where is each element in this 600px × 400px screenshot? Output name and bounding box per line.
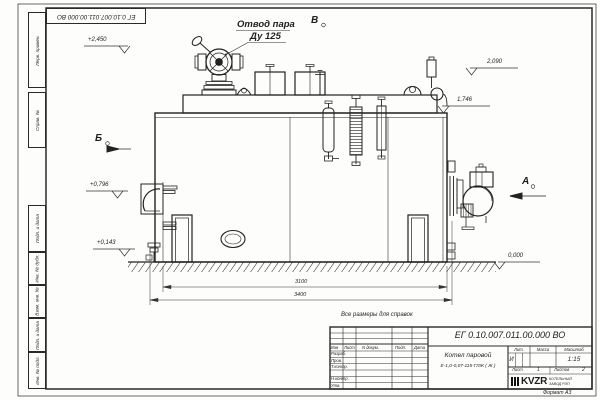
- format-label: Формат А3: [543, 391, 571, 396]
- tb-row-tkontr: Т.контр.: [331, 365, 348, 369]
- margin-label: Подп. и дата: [35, 214, 40, 243]
- callout-steam-outlet: Отвод пара: [237, 20, 295, 30]
- dim-inner: 3100: [295, 280, 307, 286]
- margin-label: Подп. и дата: [35, 321, 40, 350]
- top-left-stamp: ЕГ 0.10.007.011.00.000 ВО: [46, 8, 146, 24]
- tb-col-podp: Подп.: [395, 346, 406, 350]
- boiler-supports: [172, 215, 428, 262]
- view-arrows: [106, 23, 546, 199]
- tb-sheet-value: 1: [537, 368, 540, 373]
- margin-cell-vzam-inv: Взам. инв. №: [28, 285, 46, 318]
- level-plus-0143: +0,143: [97, 240, 116, 246]
- kvzr-company-name: КОТЕЛЬНЫЙ ЗАВОД РЭП: [549, 377, 572, 385]
- margin-cell-inv-dubl: Инв. № дубл.: [28, 252, 46, 285]
- tb-lit-label: Лит.: [508, 348, 530, 352]
- pin-fitting: [315, 71, 325, 96]
- view-marker-b: Б: [95, 134, 102, 144]
- tb-product-model: Е-1,0-0,07-115-ГЛЖ ( Ж ): [428, 365, 508, 370]
- margin-label: Перв. примен.: [35, 35, 40, 66]
- margin-cell-podp-data-2: Подп. и дата: [28, 318, 46, 352]
- stamp-text: ЕГ 0.10.007.011.00.000 ВО: [57, 13, 136, 20]
- kvzr-logo-bars-icon: [511, 377, 519, 386]
- margin-cell-inv-podl: Инв. № подл.: [28, 352, 46, 389]
- level-plus-0796: +0,796: [90, 182, 109, 188]
- burner-assembly: [447, 161, 493, 259]
- level-2090: 2,090: [487, 59, 502, 65]
- margin-label: Справ. №: [35, 110, 40, 131]
- steam-valve: [191, 35, 243, 95]
- margin-cell-podp-data-1: Подп. и дата: [28, 205, 46, 252]
- margin-label: Инв. № дубл.: [35, 254, 40, 282]
- tb-col-list: Лист: [344, 346, 355, 350]
- safety-valves: [255, 65, 325, 96]
- tb-massa-label: Масса: [530, 348, 556, 352]
- boiler-drawing: [0, 0, 600, 400]
- level-0000: 0,000: [508, 253, 523, 259]
- tb-row-nkontr: Н.контр.: [331, 377, 349, 381]
- dim-outer: 3400: [294, 293, 306, 299]
- kvzr-company-line2: ЗАВОД РЭП: [549, 382, 572, 386]
- margin-cell-perv-primen: Перв. примен.: [28, 12, 46, 88]
- margin-label: Взам. инв. №: [35, 287, 40, 315]
- level-1746: 1,746: [457, 97, 472, 103]
- tb-row-prov: Пров.: [331, 359, 342, 363]
- tb-row-utv: Утв.: [331, 384, 341, 388]
- drawing-sheet: ЕГ 0.10.007.011.00.000 ВО Перв. примен. …: [0, 0, 600, 400]
- tb-scale-value: 1:15: [556, 357, 592, 364]
- tb-sheets-value: 2: [582, 368, 585, 373]
- tb-col-data: Дата: [414, 346, 425, 350]
- level-marks: [84, 46, 540, 269]
- tb-scale-label: Масштаб: [556, 348, 592, 352]
- kvzr-logo: KVZR КОТЕЛЬНЫЙ ЗАВОД РЭП: [511, 375, 589, 388]
- kvzr-logo-text: KVZR: [521, 376, 547, 387]
- tb-col-izm: Изм: [331, 346, 339, 350]
- tb-lit-value: И: [508, 357, 515, 363]
- margin-label: Инв. № подл.: [35, 356, 40, 385]
- tb-col-doc: N докум.: [362, 346, 379, 350]
- boiler-body: [155, 95, 447, 262]
- tb-row-razrab: Разраб.: [331, 352, 346, 356]
- margin-cell-sprav-no: Справ. №: [28, 92, 46, 148]
- level-gauge-columns: [323, 95, 386, 166]
- tb-sheets-label: Листов: [554, 368, 569, 372]
- view-marker-v: В: [311, 16, 318, 26]
- callout-dn125: Ду 125: [250, 32, 281, 42]
- lifting-lug: [404, 87, 421, 96]
- ground-line: [128, 262, 496, 272]
- dome-fitting: [237, 88, 251, 95]
- level-plus-2450: +2,450: [88, 37, 107, 43]
- tb-product-name: Котел паровой: [428, 353, 508, 360]
- manhole: [221, 231, 245, 248]
- tb-sheet-label: Лист: [512, 368, 523, 372]
- tb-designation: ЕГ 0.10.007.011.00.000 ВО: [428, 331, 592, 340]
- view-marker-a: А: [522, 177, 529, 187]
- reference-note: Все размеры для справок: [341, 312, 413, 318]
